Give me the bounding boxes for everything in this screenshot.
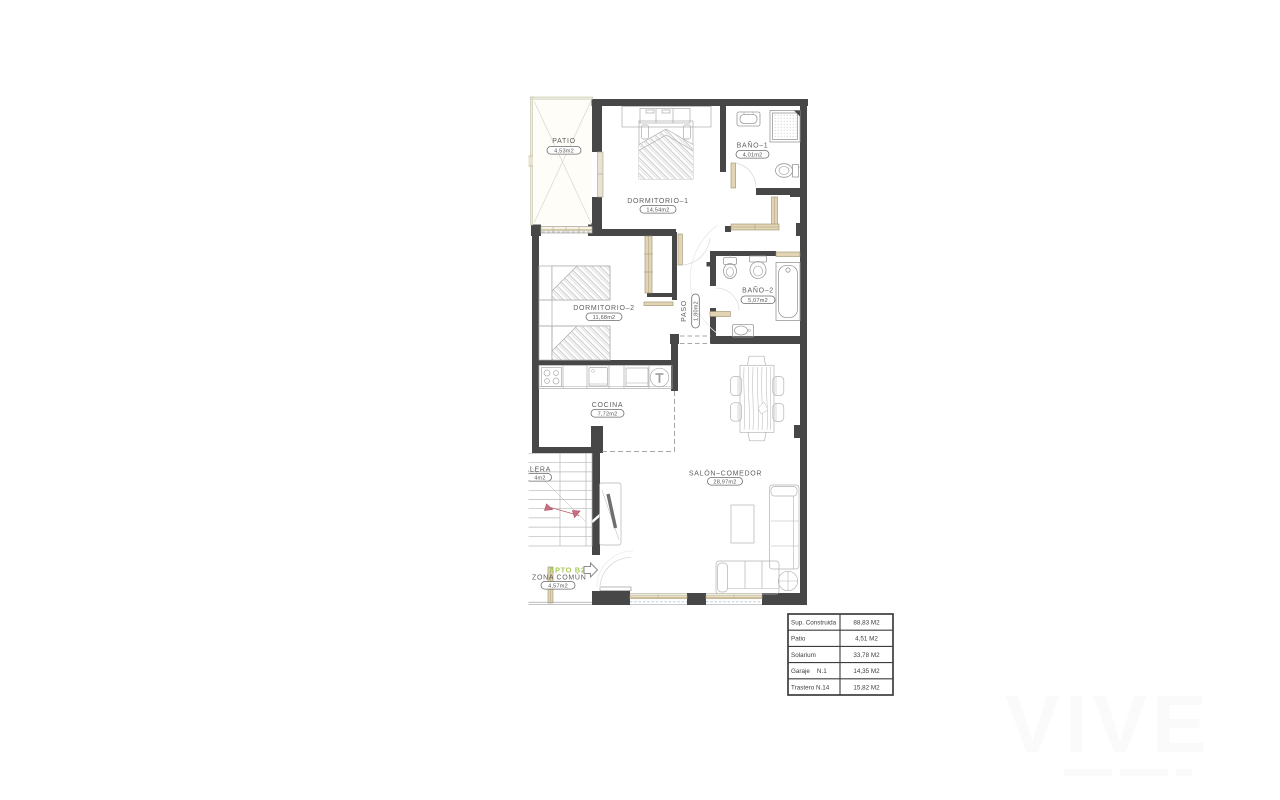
svg-text:Patio: Patio (791, 636, 806, 643)
svg-text:T: T (656, 371, 664, 386)
svg-text:4,01m2: 4,01m2 (743, 152, 763, 158)
svg-text:15,82 M2: 15,82 M2 (853, 684, 880, 691)
svg-text:ZONA COMÚN: ZONA COMÚN (532, 573, 586, 582)
svg-text:88,83 M2: 88,83 M2 (853, 620, 880, 627)
svg-text:4,57m2: 4,57m2 (548, 583, 568, 589)
svg-text:4,51 M2: 4,51 M2 (855, 636, 878, 643)
svg-text:PASO: PASO (681, 300, 688, 322)
svg-text:PATIO: PATIO (552, 138, 575, 145)
svg-text:COCINA: COCINA (592, 402, 623, 409)
svg-text:7,72m2: 7,72m2 (598, 411, 618, 417)
svg-text:1,80m2: 1,80m2 (694, 301, 700, 321)
svg-text:SALÓN–COMEDOR: SALÓN–COMEDOR (689, 469, 762, 478)
svg-text:DORMITORIO–2: DORMITORIO–2 (573, 305, 635, 312)
svg-text:14,35 M2: 14,35 M2 (853, 668, 880, 675)
svg-text:APTO B2: APTO B2 (549, 566, 586, 575)
svg-text:Garaje N.1: Garaje N.1 (791, 668, 827, 675)
svg-text:11,68m2: 11,68m2 (593, 315, 616, 321)
svg-text:4m2: 4m2 (534, 475, 545, 481)
svg-text:Trastero N.14: Trastero N.14 (791, 684, 830, 691)
svg-text:VIVE: VIVE (1005, 679, 1212, 770)
svg-text:DORMITORIO–1: DORMITORIO–1 (627, 198, 689, 205)
svg-text:33,78 M2: 33,78 M2 (853, 652, 880, 659)
svg-text:14,54m2: 14,54m2 (646, 207, 669, 213)
svg-text:Solarium: Solarium (791, 652, 816, 659)
svg-text:BAÑO–2: BAÑO–2 (742, 286, 774, 295)
svg-text:4,53m2: 4,53m2 (554, 148, 574, 154)
svg-text:28,97m2: 28,97m2 (713, 479, 736, 485)
svg-text:Sup. Construida: Sup. Construida (791, 620, 837, 627)
svg-text:5,07m2: 5,07m2 (748, 298, 768, 304)
svg-text:BAÑO–1: BAÑO–1 (737, 141, 769, 150)
